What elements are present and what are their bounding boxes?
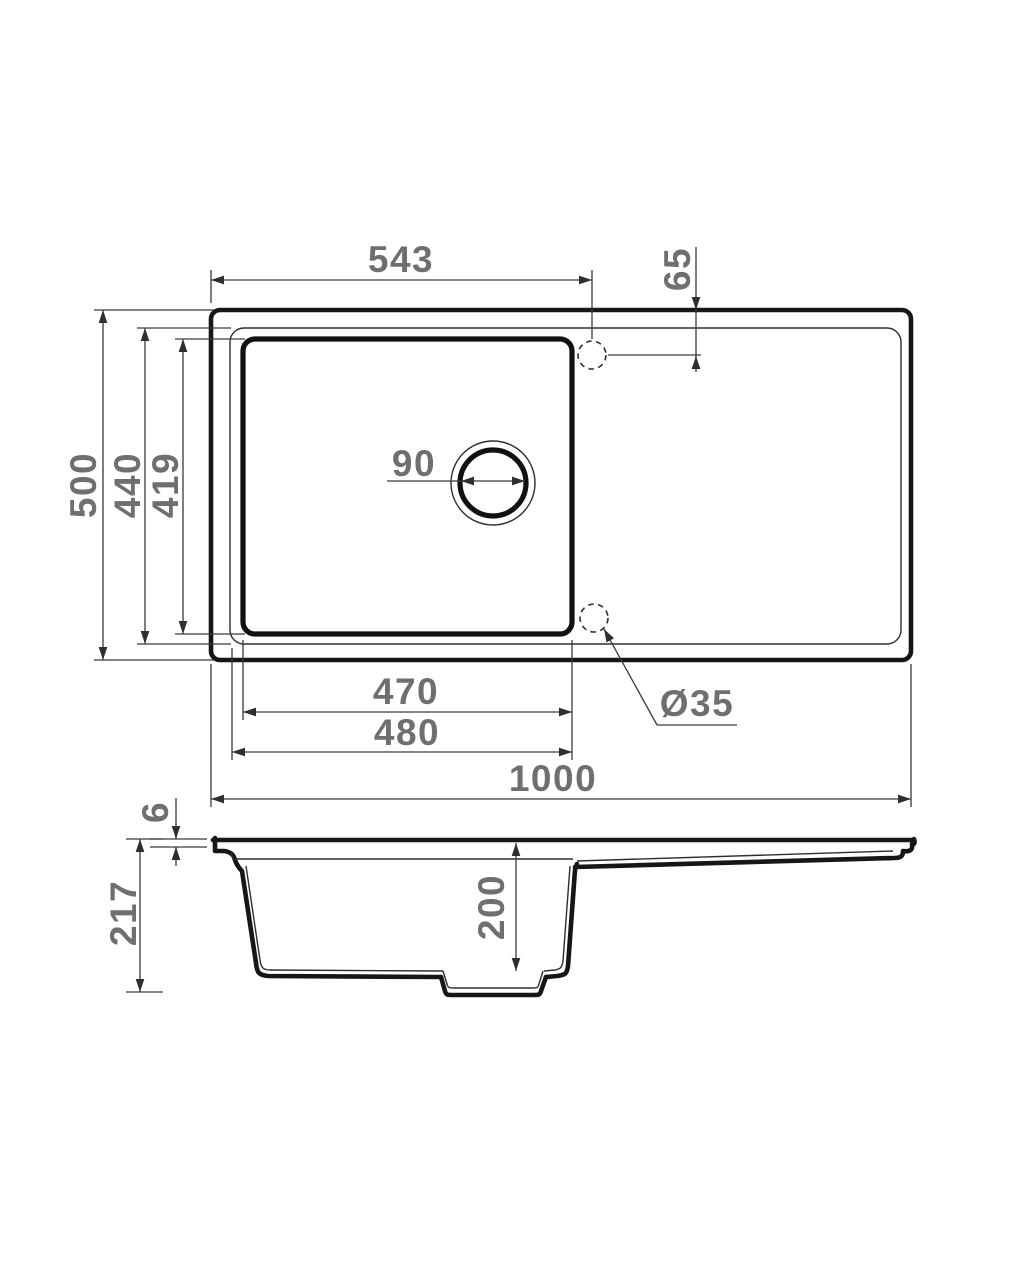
dim-label-90: 90: [392, 443, 436, 484]
section-drainboard-underside: [575, 839, 915, 867]
dim-label-500: 500: [63, 452, 104, 518]
dim-543: 543: [211, 239, 592, 339]
section-drain-notch: [441, 977, 546, 995]
section-bowl-inner-wall: [246, 866, 570, 971]
dim-200: 200: [471, 843, 516, 971]
sink-inner-edge: [230, 328, 901, 644]
dimensions-section-view: 6 217 200: [103, 798, 516, 992]
drain-outer-circle: [451, 441, 535, 525]
sink-technical-drawing: 543 65 500 440 419: [0, 0, 1024, 1265]
dim-label-470: 470: [373, 671, 439, 712]
section-view: [213, 838, 915, 995]
section-notch-inner: [443, 971, 543, 988]
tap-hole-top: [578, 341, 606, 369]
dim-1000: 1000: [211, 664, 911, 807]
top-view: [211, 310, 911, 660]
dim-label-543: 543: [368, 239, 434, 280]
dim-label-480: 480: [374, 712, 440, 753]
dim-217: 217: [103, 839, 163, 992]
tap-hole-bottom: [580, 604, 608, 632]
dim-470: 470: [243, 640, 572, 720]
dim-label-440: 440: [107, 452, 148, 518]
dim-label-1000: 1000: [509, 758, 597, 799]
dimensions-top-view: 543 65 500 440 419: [63, 239, 911, 807]
drain-hole: [460, 450, 526, 516]
dim-label-o35: Ø35: [660, 683, 734, 724]
drawing-canvas: 543 65 500 440 419: [0, 0, 1024, 1265]
dim-label-419: 419: [145, 452, 186, 518]
dim-label-217: 217: [103, 880, 144, 946]
dim-label-6: 6: [135, 801, 176, 823]
dim-label-65: 65: [657, 247, 698, 291]
bowl-outline: [243, 339, 572, 634]
section-right-wall: [546, 864, 577, 977]
sink-outline: [211, 310, 911, 660]
dim-6: 6: [135, 798, 207, 866]
dim-label-200: 200: [471, 874, 512, 940]
